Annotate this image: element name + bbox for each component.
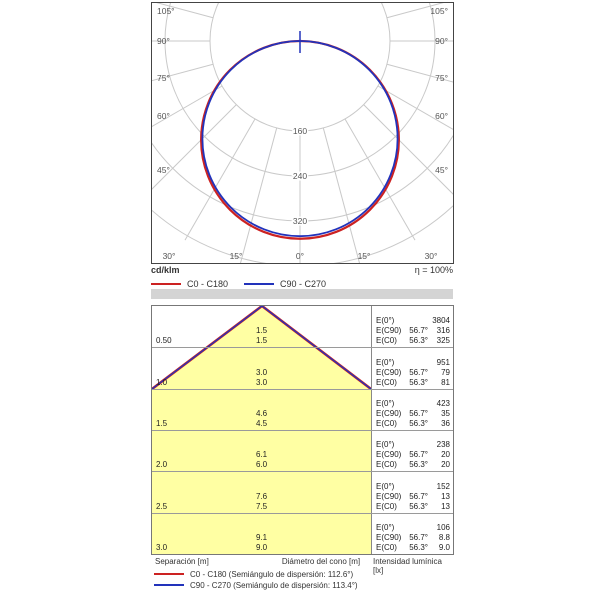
efficiency-label: η = 100%	[415, 265, 453, 277]
e0-value: 106	[410, 523, 450, 532]
legend-item-c90: C90 - C270	[244, 279, 326, 289]
angle-label-bottom: 30°	[425, 251, 438, 261]
angle-label-bottom: 30°	[163, 251, 176, 261]
angle-label-right: 105°	[430, 6, 448, 16]
cone-legend-c0: C0 - C180 (Semiángulo de dispersión: 112…	[154, 569, 474, 579]
e0-value: 951	[410, 358, 450, 367]
e0-label: E(0°)	[376, 399, 394, 408]
e0-value: 238	[410, 440, 450, 449]
footer-cone-diameter-label: Diámetro del cono [m]	[261, 557, 381, 566]
angle-label-bottom: 15°	[230, 251, 243, 261]
angle-label-left: 105°	[157, 6, 175, 16]
cone-diameter-c90: 9.1	[152, 533, 371, 542]
ec0-angle: 56.3°	[372, 460, 428, 469]
ec90-value: 79	[426, 368, 450, 377]
polar-ring-160	[210, 3, 390, 131]
cone-diagram: E(0°)3804E(C90)56.7°316E(C0)56.3°325E(0°…	[151, 305, 454, 555]
cone-legend-c90: C90 - C270 (Semiángulo de dispersión: 11…	[154, 580, 474, 590]
footer-separation-label: Separación [m]	[155, 557, 209, 566]
e0-label: E(0°)	[376, 440, 394, 449]
angle-label-left: 45°	[157, 165, 170, 175]
cone-diameter-c0: 7.5	[152, 502, 371, 511]
cone-diameter-c90: 1.5	[152, 326, 371, 335]
ec0-value: 9.0	[426, 543, 450, 552]
angle-label-right: 45°	[435, 165, 448, 175]
ec90-value: 8.8	[426, 533, 450, 542]
ec0-angle: 56.3°	[372, 419, 428, 428]
e0-label: E(0°)	[376, 358, 394, 367]
ec90-angle: 56.7°	[372, 409, 428, 418]
ec0-value: 20	[426, 460, 450, 469]
cone-diameter-c0: 6.0	[152, 460, 371, 469]
e0-value: 423	[410, 399, 450, 408]
unit-label: cd/klm	[151, 265, 180, 277]
section-divider-bar	[151, 289, 453, 299]
radial-tick-label: 240	[293, 171, 307, 181]
e0-label: E(0°)	[376, 482, 394, 491]
e0-label: E(0°)	[376, 523, 394, 532]
ec0-angle: 56.3°	[372, 378, 428, 387]
cone-diameter-c90: 4.6	[152, 409, 371, 418]
angle-label-bottom: 0°	[296, 251, 304, 261]
c90-line-swatch	[154, 584, 184, 586]
legend-label-c90: C90 - C270	[280, 279, 326, 289]
cone-row-separator	[152, 430, 453, 431]
ec90-value: 20	[426, 450, 450, 459]
polar-angle-gridline	[323, 128, 359, 263]
cone-diameter-c0: 9.0	[152, 543, 371, 552]
ec90-value: 35	[426, 409, 450, 418]
angle-label-bottom: 15°	[358, 251, 371, 261]
cone-diameter-c90: 7.6	[152, 492, 371, 501]
angle-label-left: 90°	[157, 36, 170, 46]
angle-label-right: 60°	[435, 111, 448, 121]
angle-label-right: 75°	[435, 73, 448, 83]
legend-label-c0: C0 - C180	[187, 279, 228, 289]
e0-value: 3804	[410, 316, 450, 325]
legend-item-c0: C0 - C180	[151, 279, 228, 289]
cone-row-separator	[152, 471, 453, 472]
cone-diameter-c90: 6.1	[152, 450, 371, 459]
ec90-value: 316	[426, 326, 450, 335]
c0-line-swatch	[151, 283, 181, 285]
c90-line-swatch	[244, 283, 274, 285]
ec0-value: 13	[426, 502, 450, 511]
ec90-angle: 56.7°	[372, 368, 428, 377]
cone-diameter-c0: 4.5	[152, 419, 371, 428]
e0-label: E(0°)	[376, 316, 394, 325]
radial-tick-label: 320	[293, 216, 307, 226]
cone-row-separator	[152, 347, 453, 348]
cone-diameter-c0: 3.0	[152, 378, 371, 387]
cone-legend-label-c90: C90 - C270 (Semiángulo de dispersión: 11…	[190, 581, 358, 590]
ec90-angle: 56.7°	[372, 326, 428, 335]
ec0-value: 325	[426, 336, 450, 345]
cone-diagram-footer: Separación [m] Diámetro del cono [m] Int…	[151, 557, 453, 567]
ec0-value: 36	[426, 419, 450, 428]
ec0-angle: 56.3°	[372, 336, 428, 345]
c0-line-swatch	[154, 573, 184, 575]
polar-chart-canvas: 160240320105°105°90°90°75°75°60°60°45°45…	[152, 3, 453, 263]
ec90-angle: 56.7°	[372, 492, 428, 501]
ec90-angle: 56.7°	[372, 450, 428, 459]
e0-value: 152	[410, 482, 450, 491]
cone-diameter-c0: 1.5	[152, 336, 371, 345]
polar-photometric-chart: 160240320105°105°90°90°75°75°60°60°45°45…	[151, 2, 454, 264]
ec90-angle: 56.7°	[372, 533, 428, 542]
ec90-value: 13	[426, 492, 450, 501]
cone-row-separator	[152, 389, 453, 390]
polar-angle-gridline	[240, 128, 276, 263]
cone-row-separator	[152, 513, 453, 514]
ec0-value: 81	[426, 378, 450, 387]
angle-label-left: 75°	[157, 73, 170, 83]
cone-diameter-c90: 3.0	[152, 368, 371, 377]
radial-tick-label: 160	[293, 126, 307, 136]
polar-chart-caption-row: cd/klm η = 100%	[151, 265, 453, 277]
polar-ring-320	[152, 3, 453, 221]
ec0-angle: 56.3°	[372, 502, 428, 511]
cone-legend-label-c0: C0 - C180 (Semiángulo de dispersión: 112…	[190, 570, 353, 579]
angle-label-right: 90°	[435, 36, 448, 46]
ec0-angle: 56.3°	[372, 543, 428, 552]
angle-label-left: 60°	[157, 111, 170, 121]
